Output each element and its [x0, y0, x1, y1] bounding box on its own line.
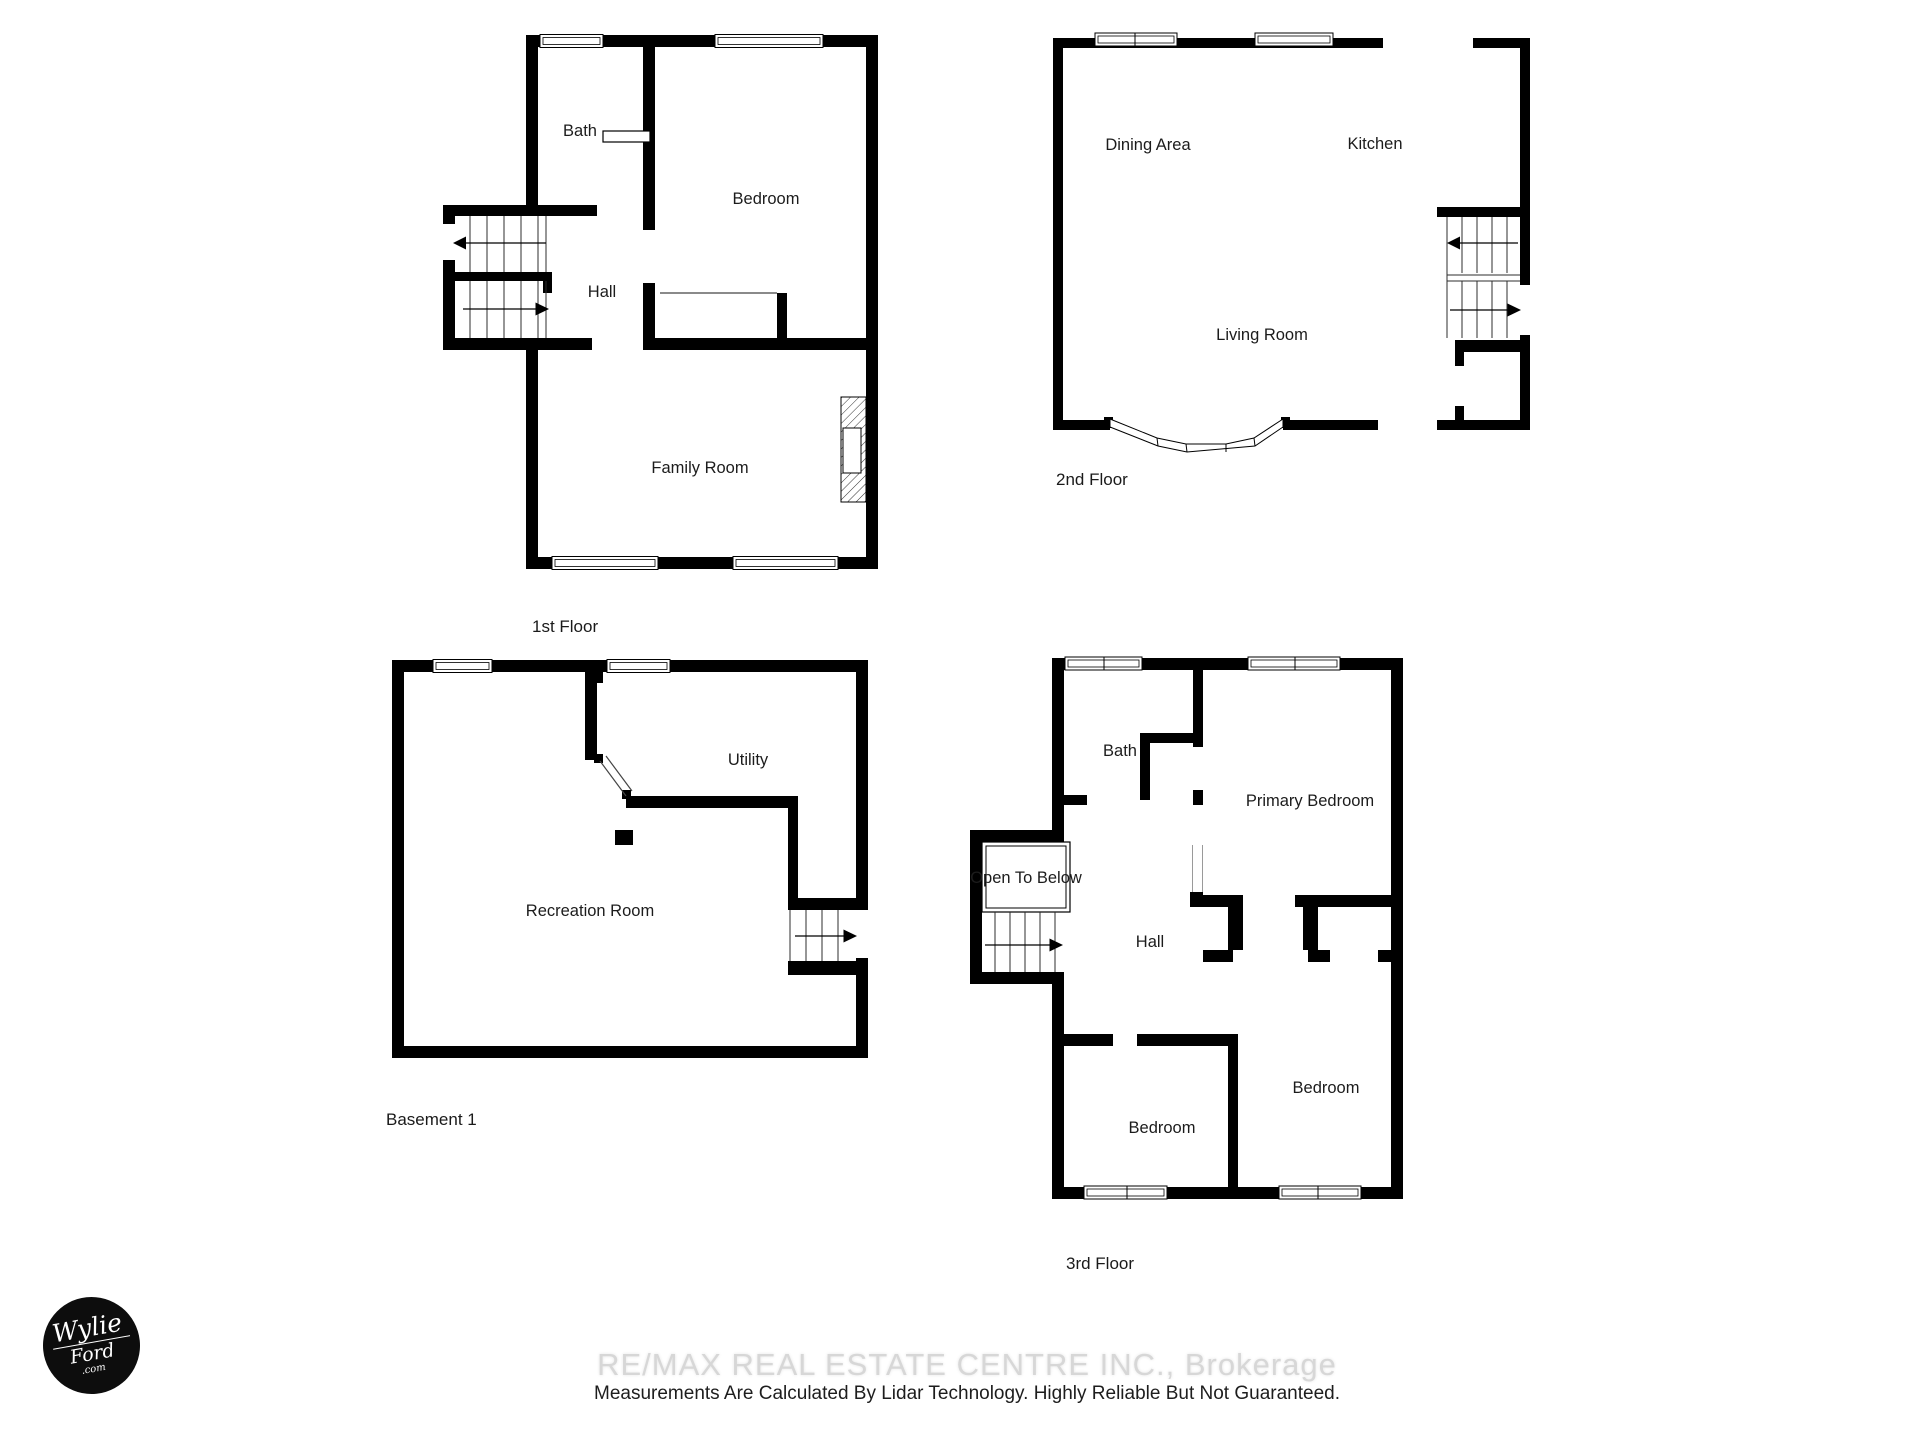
bay-window-symbol [1110, 419, 1283, 452]
floor-plan-3rd-floor: Bath Primary Bedroom Open To Below Hall … [960, 650, 1420, 1210]
room-label-utility: Utility [728, 751, 769, 769]
room-label-family-room: Family Room [651, 459, 748, 477]
room-label-hall: Hall [588, 283, 616, 301]
staircase [995, 912, 1055, 972]
exterior-and-interior-walls [443, 35, 878, 569]
room-label-bath: Bath [1103, 742, 1137, 760]
support-post-symbol [615, 830, 633, 845]
room-label-open-to-below: Open To Below [970, 869, 1082, 887]
floor-title-3rd: 3rd Floor [1066, 1254, 1134, 1274]
room-label-recreation-room: Recreation Room [526, 902, 654, 920]
floor-title-2nd: 2nd Floor [1056, 470, 1128, 490]
floor-plan-2nd-floor: Dining Area Kitchen Living Room [1045, 28, 1545, 460]
room-label-bath: Bath [563, 122, 597, 140]
stair-arrow-right-icon [795, 930, 857, 943]
room-label-bedroom-right: Bedroom [1293, 1079, 1360, 1097]
stair-arrow-right-icon [1450, 304, 1521, 317]
staircase-upper-run [1447, 217, 1520, 338]
room-label-primary-bedroom: Primary Bedroom [1246, 792, 1374, 810]
exterior-and-interior-walls [392, 660, 868, 1058]
bath-vanity-symbol [603, 131, 650, 142]
door-jamb-lines [1193, 845, 1203, 892]
staircase-upper-run [470, 216, 546, 272]
room-label-hall: Hall [1136, 933, 1164, 951]
footer: RE/MAX REAL ESTATE CENTRE INC., Brokerag… [417, 1348, 1517, 1405]
room-label-bedroom: Bedroom [733, 190, 800, 208]
window-symbols [540, 35, 838, 570]
stair-arrow-right-icon [985, 939, 1063, 952]
brokerage-watermark: RE/MAX REAL ESTATE CENTRE INC., Brokerag… [417, 1348, 1517, 1382]
floor-title-1st: 1st Floor [532, 617, 598, 637]
room-label-bedroom-left: Bedroom [1129, 1119, 1196, 1137]
floor-title-basement: Basement 1 [386, 1110, 477, 1130]
floorplan-page: { "colors": { "wall": "#000000", "label_… [0, 0, 1920, 1440]
floor-plan-basement: Utility Recreation Room [385, 650, 880, 1065]
room-label-living-room: Living Room [1216, 326, 1308, 344]
measurement-disclaimer: Measurements Are Calculated By Lidar Tec… [417, 1383, 1517, 1405]
stair-arrow-right-icon [463, 303, 549, 316]
room-label-dining-area: Dining Area [1105, 136, 1191, 154]
stair-arrow-left-icon [453, 237, 546, 250]
exterior-and-interior-walls [970, 658, 1403, 1199]
wylieford-logo: Wylie Ford .com [38, 1292, 145, 1399]
exterior-and-interior-walls [1053, 38, 1530, 430]
fireplace-symbol [841, 397, 866, 502]
room-label-kitchen: Kitchen [1347, 135, 1402, 153]
floor-plan-1st-floor: Bath Bedroom Hall Family Room [435, 25, 895, 585]
